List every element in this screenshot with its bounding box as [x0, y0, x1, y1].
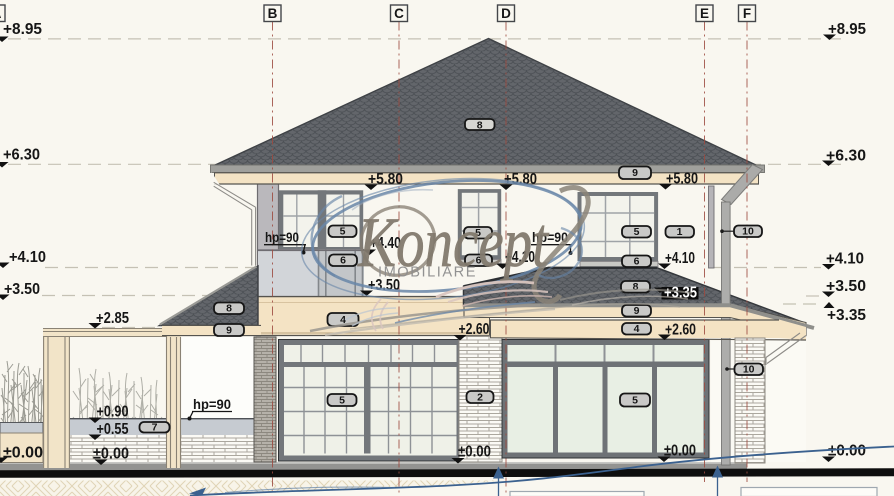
svg-text:C: C — [394, 6, 404, 21]
svg-text:10: 10 — [743, 364, 755, 376]
svg-text:6: 6 — [634, 256, 640, 268]
svg-text:+0.90: +0.90 — [97, 404, 129, 421]
svg-text:+4.10: +4.10 — [9, 249, 46, 266]
svg-text:8: 8 — [226, 303, 232, 315]
svg-text:5: 5 — [632, 395, 638, 407]
svg-text:+3.35: +3.35 — [664, 285, 697, 302]
svg-text:6: 6 — [340, 255, 346, 267]
svg-text:+8.95: +8.95 — [3, 21, 42, 38]
svg-text:±0.00: ±0.00 — [458, 444, 491, 461]
svg-text:8: 8 — [477, 119, 483, 131]
svg-text:+2.60: +2.60 — [665, 322, 696, 339]
svg-text:+2.85: +2.85 — [96, 310, 129, 327]
svg-text:9: 9 — [632, 167, 638, 179]
svg-text:F: F — [743, 6, 751, 21]
svg-text:5: 5 — [340, 226, 346, 238]
svg-text:hp=90: hp=90 — [265, 229, 299, 245]
svg-text:B: B — [268, 6, 278, 21]
svg-text:hp=90: hp=90 — [193, 396, 231, 412]
svg-text:+3.50: +3.50 — [4, 281, 40, 298]
svg-text:1: 1 — [677, 226, 683, 238]
svg-text:±0.00: ±0.00 — [3, 445, 43, 462]
svg-text:+0.55: +0.55 — [97, 421, 129, 438]
svg-text:D: D — [501, 6, 511, 21]
svg-text:+3.35: +3.35 — [827, 307, 866, 324]
svg-text:5: 5 — [339, 395, 345, 407]
svg-text:4: 4 — [634, 323, 640, 335]
svg-text:9: 9 — [634, 305, 640, 317]
svg-text:7: 7 — [152, 422, 158, 434]
svg-text:IMOBILIARE: IMOBILIARE — [378, 265, 477, 281]
svg-text:+6.30: +6.30 — [3, 147, 40, 164]
svg-text:10: 10 — [742, 226, 754, 238]
svg-text:2: 2 — [477, 392, 483, 404]
svg-text:E: E — [700, 6, 709, 21]
svg-text:9: 9 — [226, 325, 232, 337]
svg-text:8: 8 — [633, 281, 639, 293]
svg-text:5: 5 — [634, 226, 640, 238]
